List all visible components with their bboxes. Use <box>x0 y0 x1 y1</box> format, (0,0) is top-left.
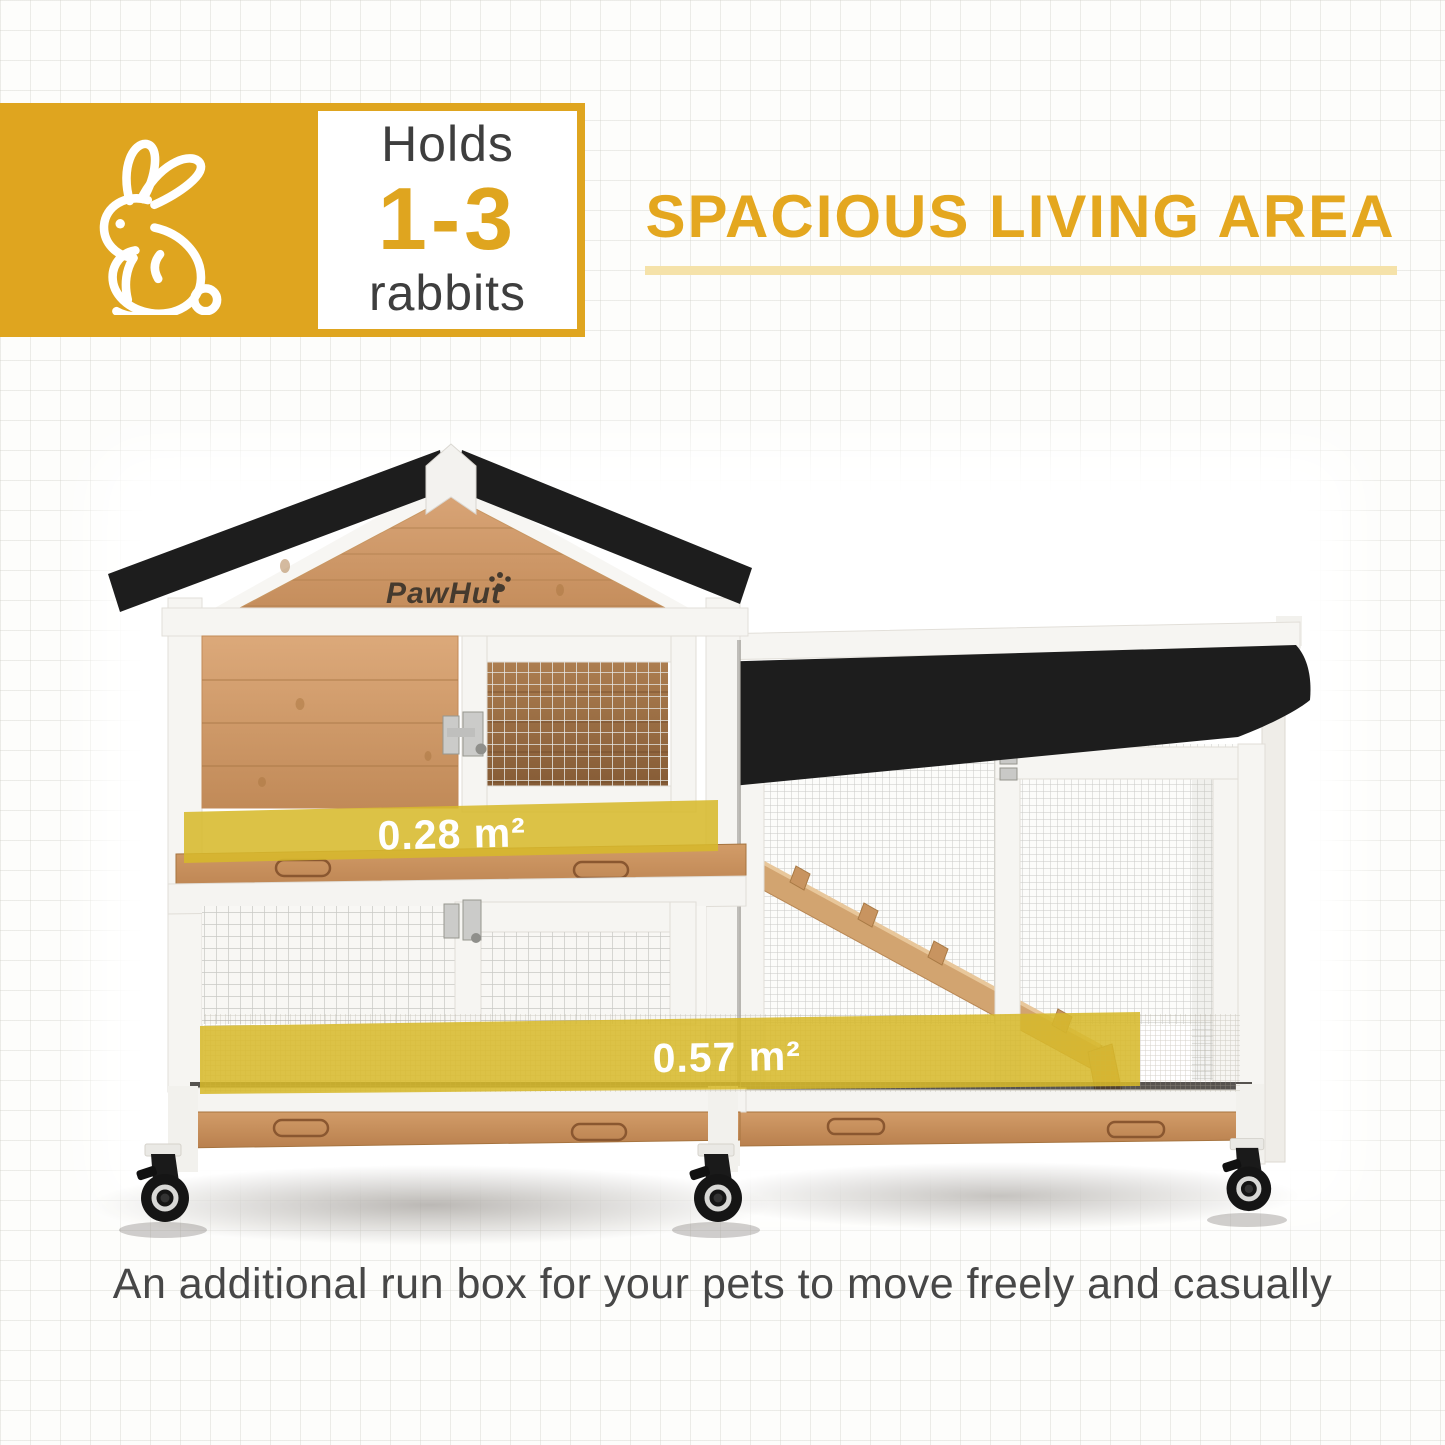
brand-text: PawHut <box>386 577 503 610</box>
run-base-board <box>738 1112 1250 1146</box>
section-heading: SPACIOUS LIVING AREA <box>598 182 1443 275</box>
area-label-upper: 0.28 m² <box>377 809 526 858</box>
latch-icon <box>443 712 487 756</box>
capacity-panel: Holds 1-3 rabbits <box>318 111 577 329</box>
capacity-prefix: Holds <box>381 119 514 170</box>
area-label-lower: 0.57 m² <box>652 1033 801 1082</box>
heading-underline <box>645 266 1397 275</box>
house-base-board <box>180 1112 740 1148</box>
capacity-range: 1-3 <box>378 177 517 261</box>
rabbit-icon <box>55 125 250 315</box>
run-box <box>712 616 1310 1211</box>
lower-mesh-panel <box>202 906 455 1024</box>
hinge-icon <box>1000 768 1017 780</box>
pawhut-logo: PawHut <box>386 572 511 610</box>
upper-wood-panel <box>202 636 458 808</box>
capacity-badge: Holds 1-3 rabbits <box>0 103 585 337</box>
page-title: SPACIOUS LIVING AREA <box>598 182 1443 251</box>
lower-door <box>455 902 696 1024</box>
caption-text: An additional run box for your pets to m… <box>0 1260 1445 1309</box>
capacity-suffix: rabbits <box>369 268 526 319</box>
latch-icon <box>444 900 481 943</box>
